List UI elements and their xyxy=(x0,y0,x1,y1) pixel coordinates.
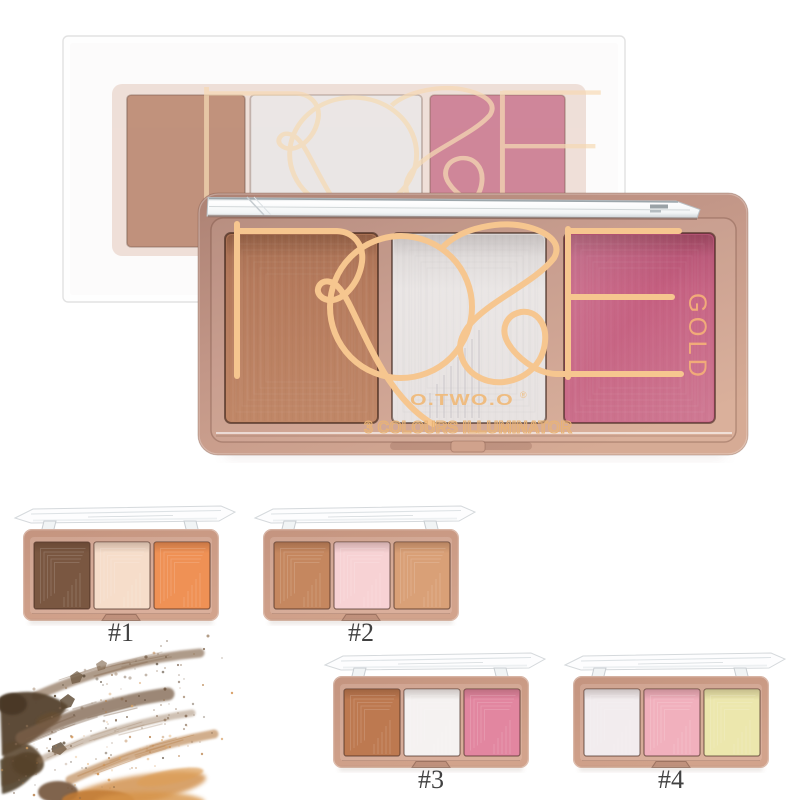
svg-text:®: ® xyxy=(520,390,527,400)
svg-text:#4: #4 xyxy=(658,765,684,794)
svg-text:#3: #3 xyxy=(418,765,444,794)
svg-text:GOLD: GOLD xyxy=(683,293,711,381)
svg-text:O.TWO.O: O.TWO.O xyxy=(410,392,514,409)
svg-text:3 COLOURS ILLUMINATOR: 3 COLOURS ILLUMINATOR xyxy=(364,417,572,437)
svg-text:#2: #2 xyxy=(348,618,374,647)
svg-text:#1: #1 xyxy=(108,618,134,647)
